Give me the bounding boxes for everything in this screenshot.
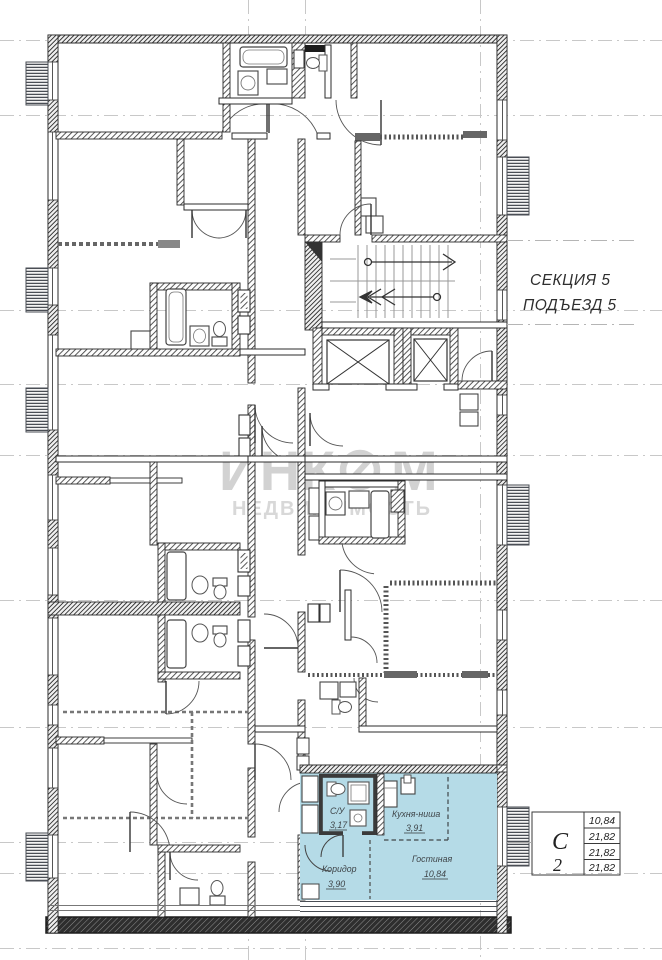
svg-text:21,82: 21,82 (588, 831, 615, 843)
svg-text:Коридор: Коридор (322, 864, 357, 874)
svg-text:С/У: С/У (330, 806, 346, 816)
svg-text:2: 2 (553, 855, 562, 875)
svg-text:10,84: 10,84 (589, 815, 615, 827)
svg-text:21,82: 21,82 (588, 862, 615, 874)
svg-text:3,90: 3,90 (328, 879, 345, 889)
svg-text:С: С (552, 829, 569, 855)
svg-text:ПОДЪЕЗД 5: ПОДЪЕЗД 5 (523, 297, 617, 314)
svg-text:3,91: 3,91 (406, 823, 423, 833)
svg-text:10,84: 10,84 (424, 869, 446, 879)
svg-text:СЕКЦИЯ 5: СЕКЦИЯ 5 (530, 272, 611, 289)
svg-text:21,82: 21,82 (588, 847, 615, 859)
svg-text:Кухня-ниша: Кухня-ниша (392, 809, 440, 819)
svg-text:Гостиная: Гостиная (412, 854, 453, 864)
svg-text:3,17: 3,17 (330, 820, 348, 830)
